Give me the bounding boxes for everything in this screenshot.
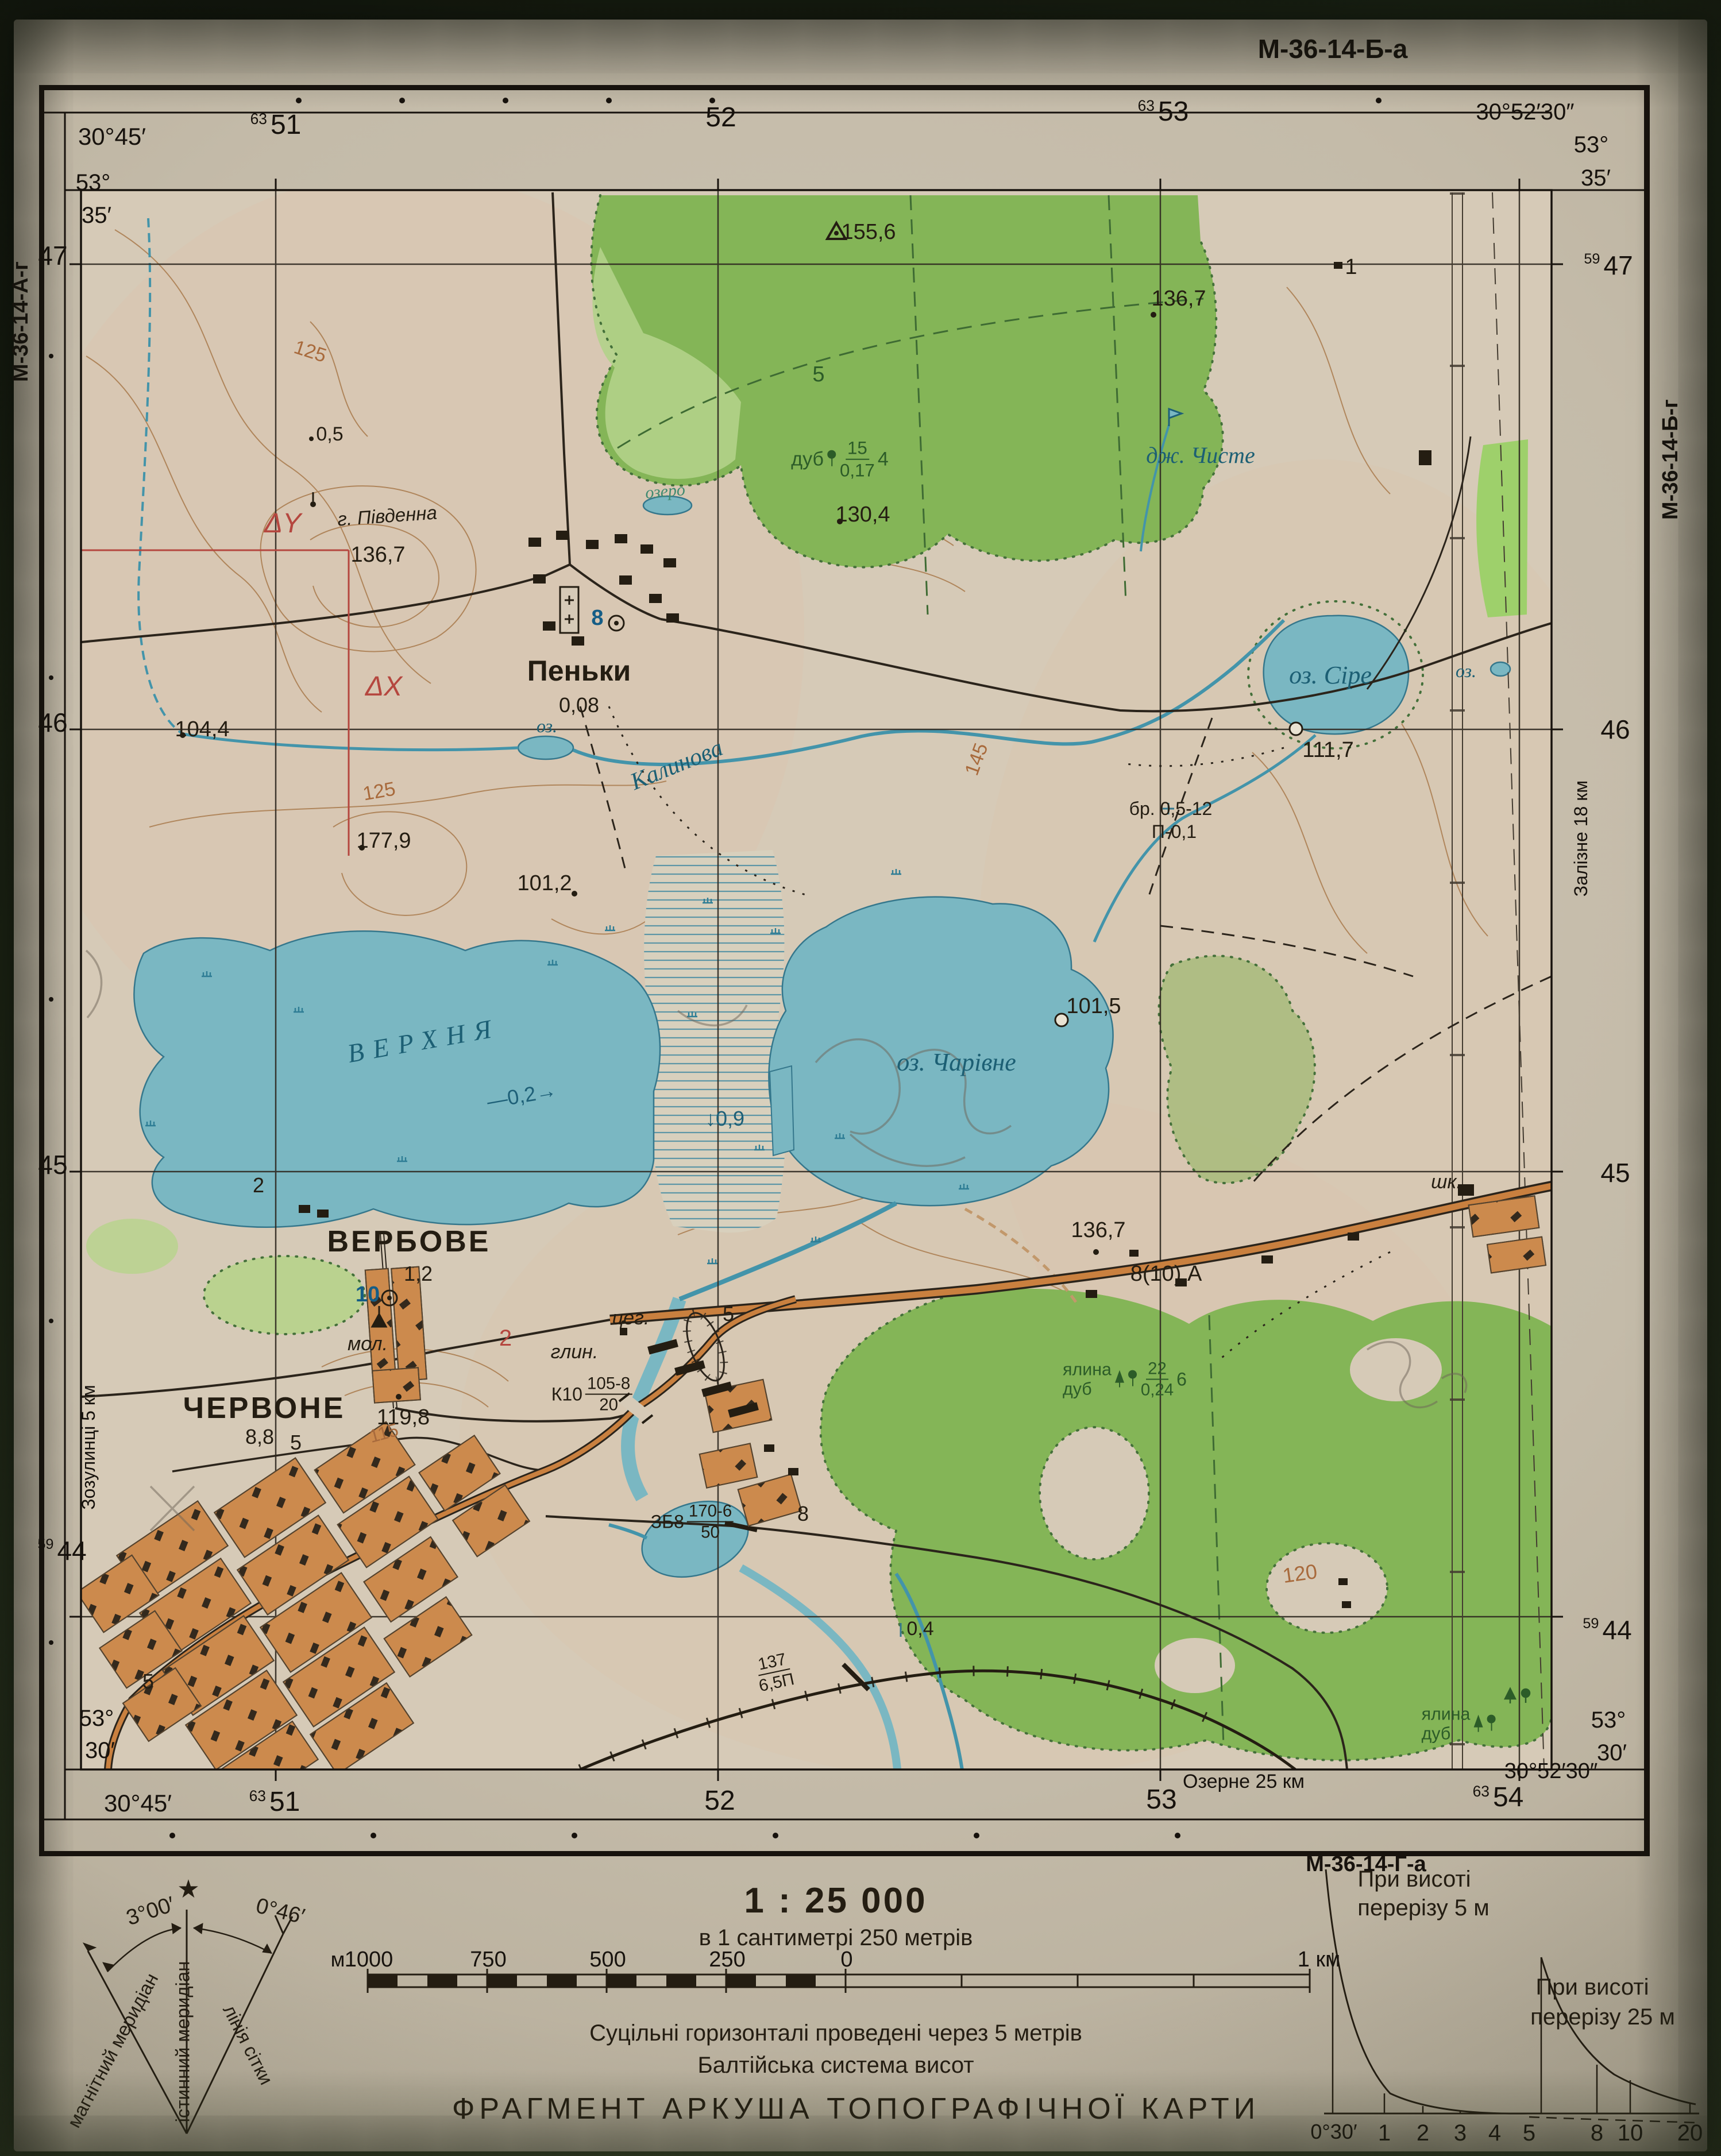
photo-of-topographic-map: { "sheet": { "type": "Ukrainian topograp… xyxy=(0,0,1721,2156)
school-building xyxy=(1458,1184,1474,1196)
cemetery xyxy=(560,587,578,633)
marsh-area xyxy=(644,850,786,1232)
map-graphics xyxy=(0,0,1721,2156)
brick-chimney-symbol xyxy=(620,1328,627,1335)
lake-verkhnya-shape xyxy=(134,931,660,1227)
scale-bar xyxy=(368,1969,1310,1993)
compass-diagram xyxy=(83,1910,292,2134)
lake-sire-shape xyxy=(1264,616,1409,734)
verbove-blocks xyxy=(365,1267,427,1403)
slope-diagram xyxy=(1324,1869,1699,2123)
